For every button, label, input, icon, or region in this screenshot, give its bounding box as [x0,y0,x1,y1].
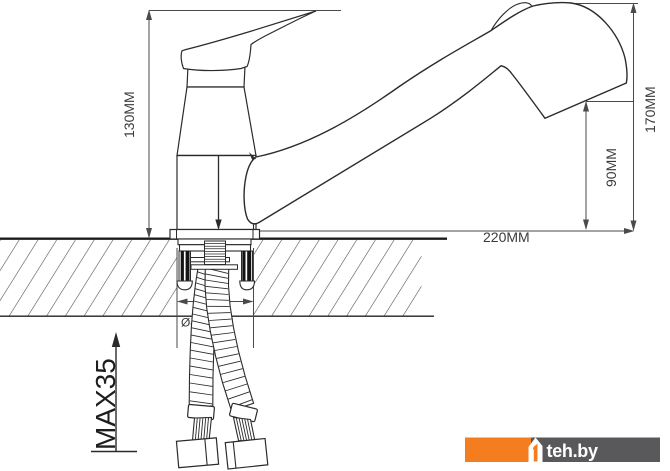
svg-text:130MM: 130MM [121,91,137,138]
svg-text:MAX35: MAX35 [90,358,121,450]
svg-text:220MM: 220MM [483,229,530,245]
svg-text:170MM: 170MM [642,86,658,133]
svg-text:90MM: 90MM [603,148,619,187]
svg-text:teh.by: teh.by [547,441,598,461]
